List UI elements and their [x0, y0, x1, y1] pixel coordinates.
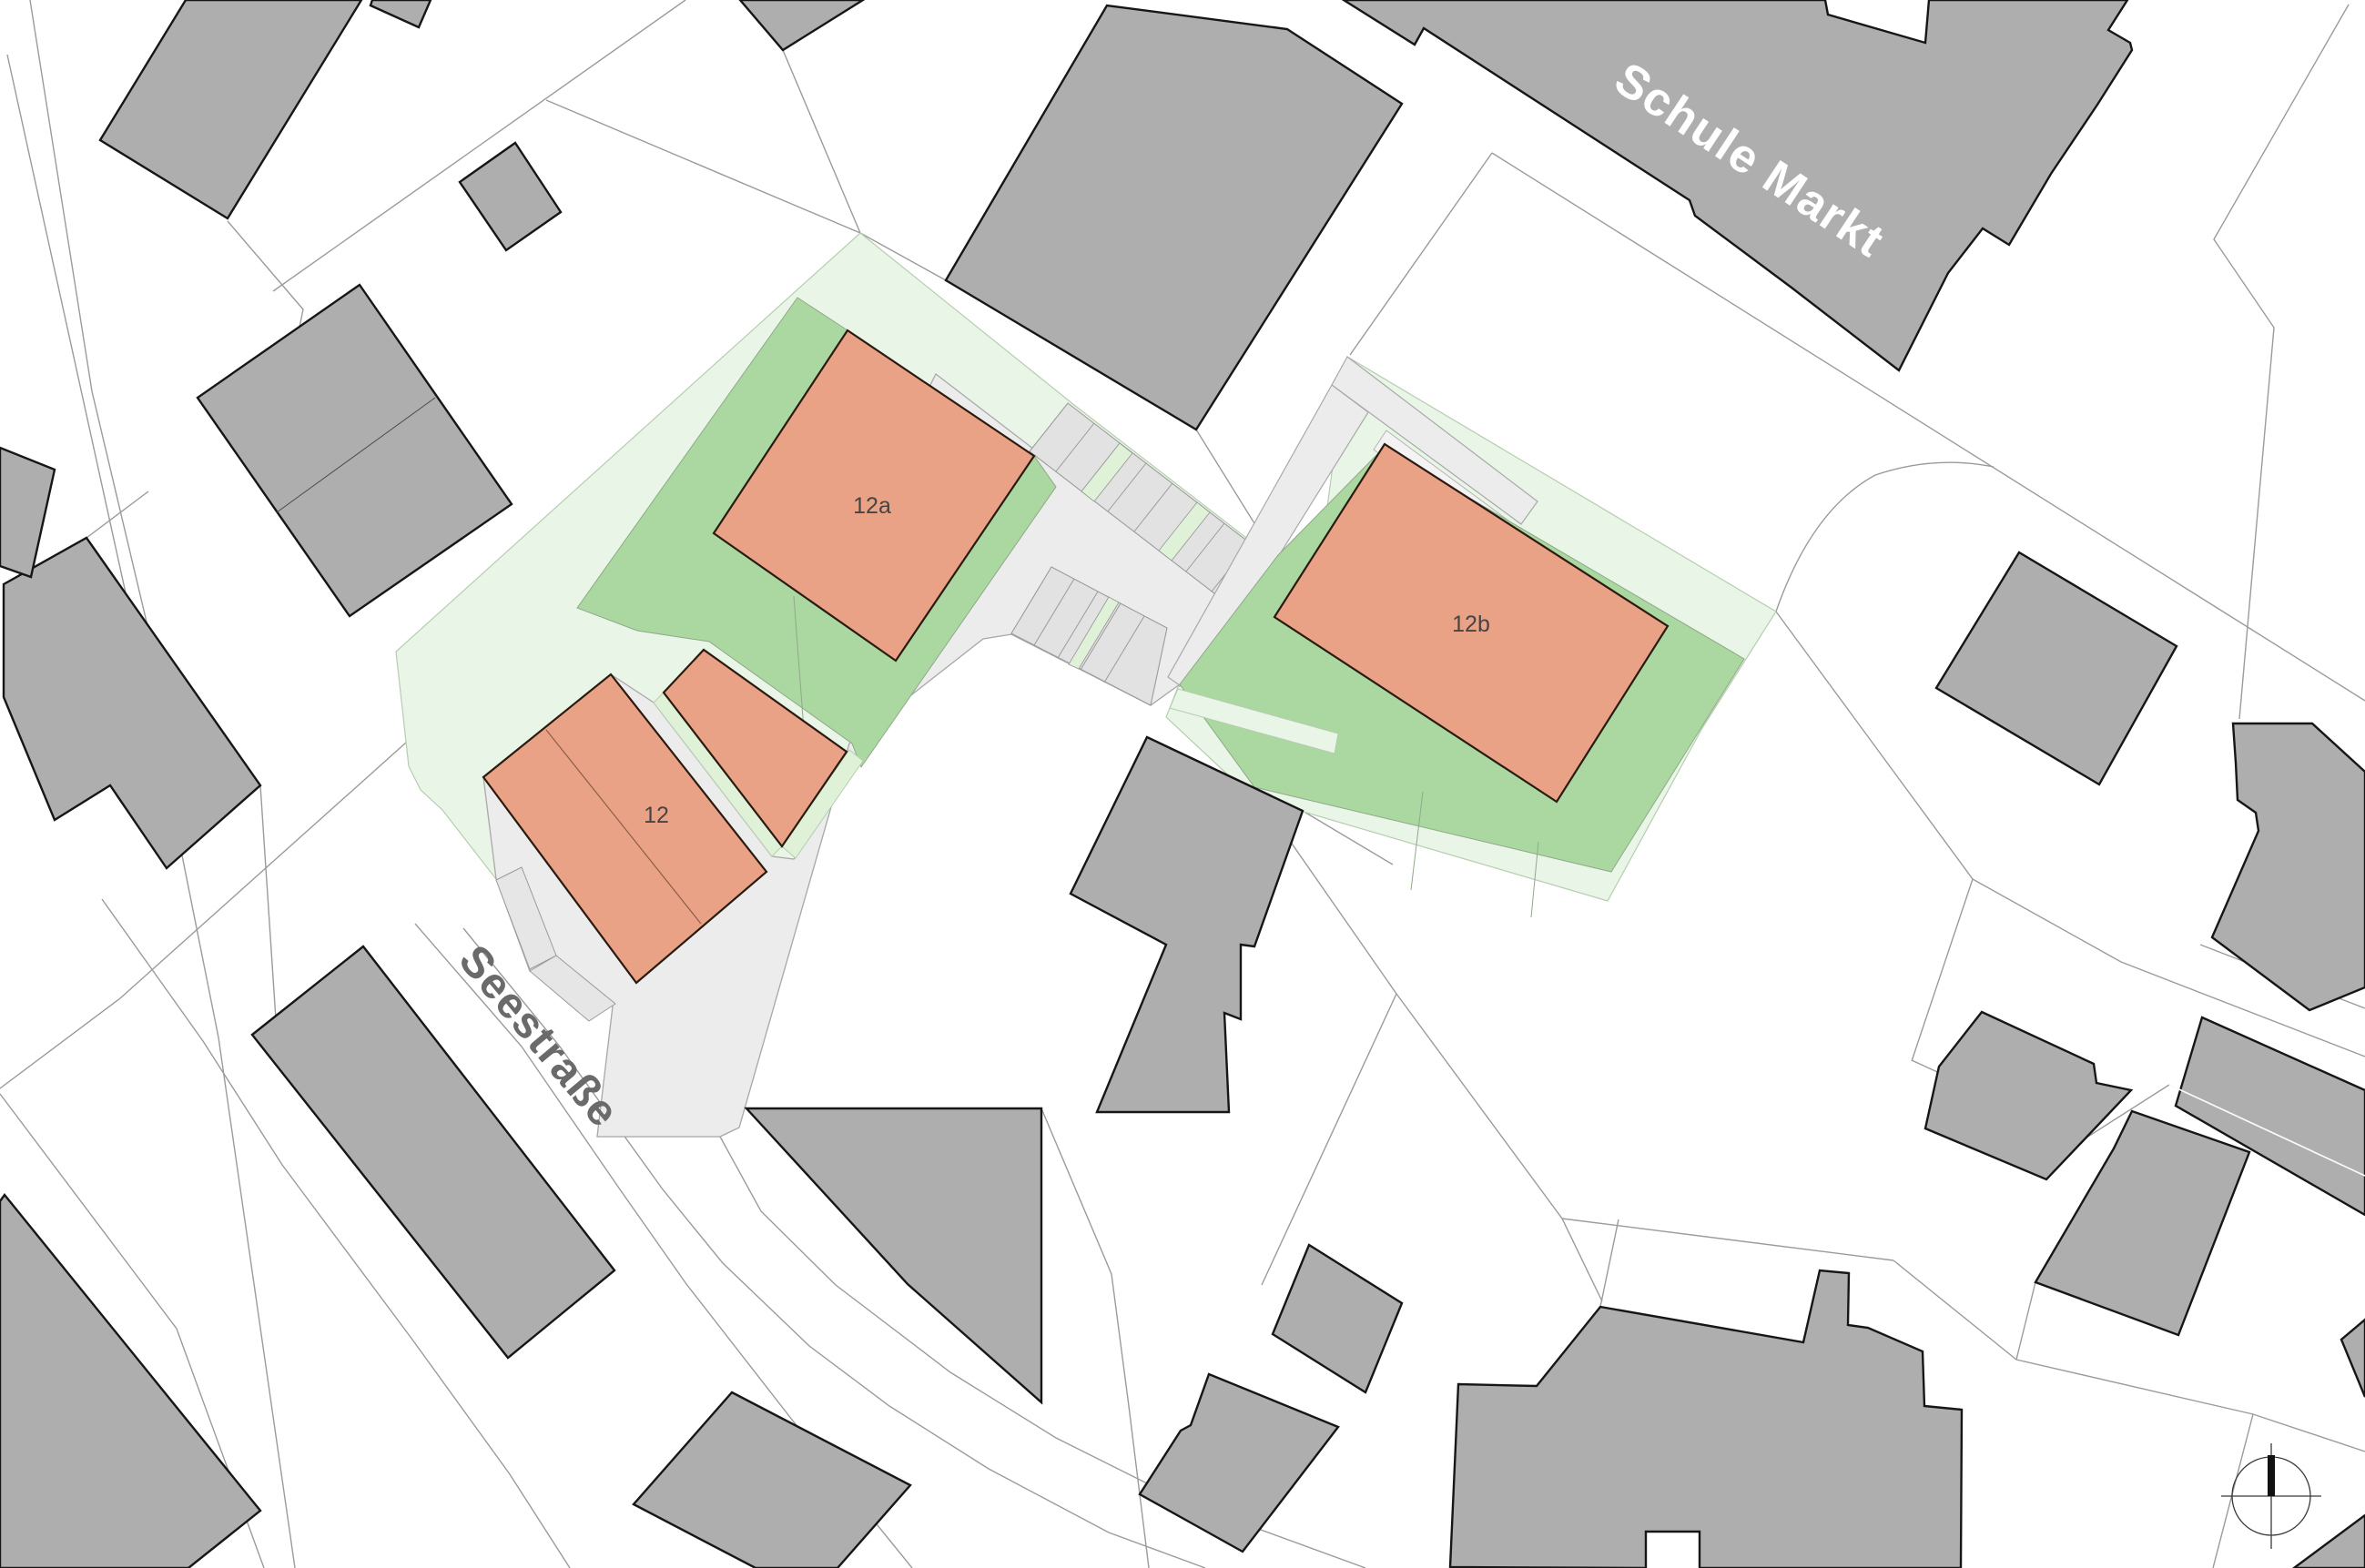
- svg-text:12a: 12a: [853, 493, 891, 519]
- svg-text:12b: 12b: [1452, 612, 1490, 637]
- svg-text:12: 12: [644, 803, 669, 828]
